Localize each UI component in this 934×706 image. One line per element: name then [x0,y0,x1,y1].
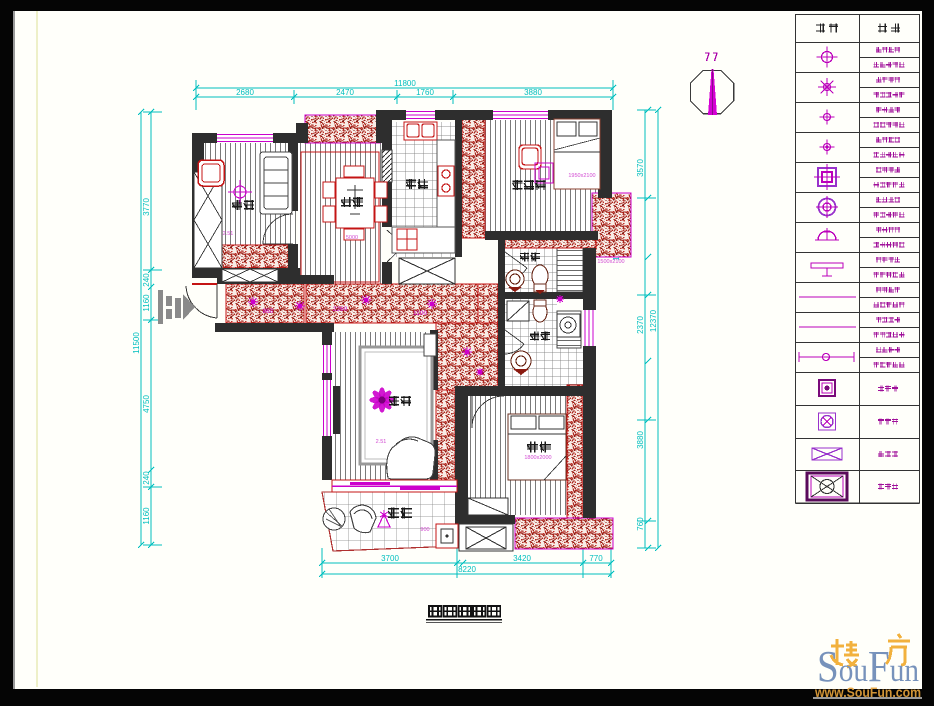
svg-text:1800x2000: 1800x2000 [524,455,551,461]
svg-text:2260: 2260 [333,306,348,313]
svg-text:1500x2100: 1500x2100 [597,259,624,265]
svg-text:11500: 11500 [132,332,141,354]
svg-text:240: 240 [142,471,151,485]
svg-text:3570: 3570 [636,159,645,177]
svg-text:3770: 3770 [142,198,151,216]
svg-text:1160: 1160 [142,294,151,312]
svg-text:3880: 3880 [636,431,645,449]
svg-text:3700: 3700 [381,554,399,563]
svg-text:11800: 11800 [394,79,416,88]
svg-text:770: 770 [589,554,603,563]
svg-text:2.51: 2.51 [376,439,387,445]
svg-text:8220: 8220 [458,565,476,574]
svg-text:1950x2100: 1950x2100 [568,173,595,179]
svg-text:760: 760 [636,517,645,531]
svg-text:1760: 1760 [416,88,434,97]
svg-text:12370: 12370 [649,309,658,332]
svg-text:2680: 2680 [236,88,254,97]
svg-text:4750: 4750 [142,395,151,413]
svg-text:2.51: 2.51 [223,231,234,237]
svg-text:1100: 1100 [413,310,427,317]
svg-text:5000: 5000 [346,235,358,241]
svg-text:240: 240 [142,273,151,287]
svg-text:3880: 3880 [524,88,542,97]
svg-text:860: 860 [263,308,274,315]
svg-text:2370: 2370 [636,316,645,334]
svg-text:3420: 3420 [513,554,531,563]
svg-text:900: 900 [420,527,429,533]
svg-text:1160: 1160 [142,507,151,525]
svg-text:2470: 2470 [336,88,354,97]
